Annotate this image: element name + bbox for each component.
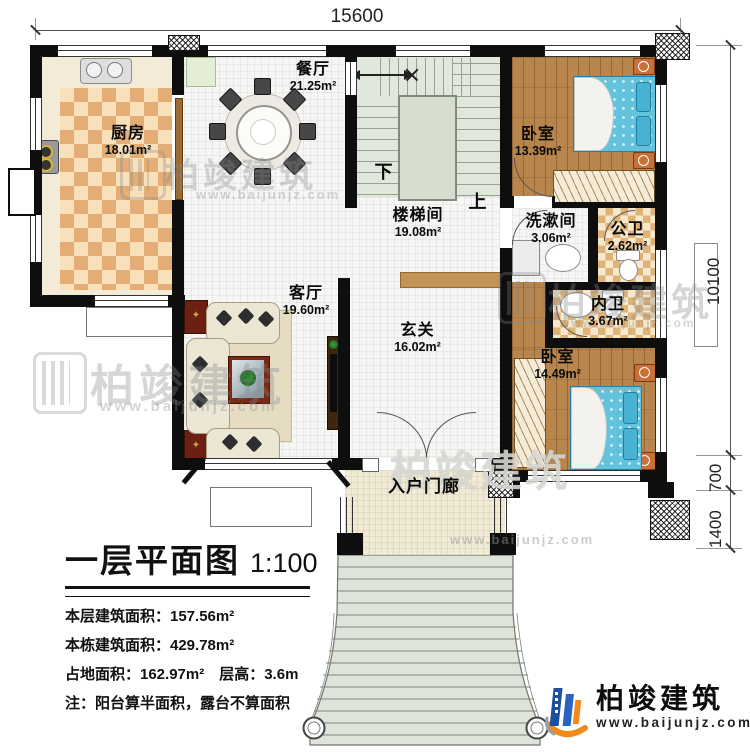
extension-line xyxy=(696,45,742,46)
dimension-right-upper: 700 xyxy=(706,452,726,492)
room-name: 公卫 xyxy=(600,221,655,239)
company-name: 柏竣建筑 xyxy=(596,684,750,715)
porch-rail xyxy=(340,497,356,533)
entry-stairs xyxy=(300,555,550,752)
door-gap xyxy=(500,208,512,248)
room-area: 3.06m² xyxy=(518,231,584,245)
wall xyxy=(545,338,655,348)
watermark-logo xyxy=(33,352,87,414)
side-table: ✦ xyxy=(184,300,208,334)
dimension-line-top xyxy=(35,30,680,31)
extension-line xyxy=(696,548,742,549)
room-name: 入户门廊 xyxy=(385,477,463,496)
title-block: 一层平面图 1:100 本层建筑面积：157.56m² 本栋建筑面积：429.7… xyxy=(65,534,335,713)
room-name: 厨房 xyxy=(93,125,163,143)
room-area: 19.08m² xyxy=(378,225,458,239)
room-label-living: 客厅 19.60m² xyxy=(275,285,337,317)
bay-window-sill xyxy=(210,487,312,527)
window xyxy=(545,45,640,57)
room-label-dining: 餐厅 21.25m² xyxy=(280,61,346,93)
plant xyxy=(329,340,338,349)
stair-landing xyxy=(398,95,457,201)
room-label-porch: 入户门廊 xyxy=(385,477,463,496)
room-area: 13.39m² xyxy=(505,144,571,158)
nightstand xyxy=(633,152,655,169)
room-name: 洗漱间 xyxy=(518,213,584,231)
pillow xyxy=(623,428,638,460)
room-label-bedroom-top: 卧室 13.39m² xyxy=(505,126,571,158)
room-area: 21.25m² xyxy=(280,79,346,93)
scale-label: 1:100 xyxy=(250,548,318,579)
door-frame xyxy=(362,458,379,472)
room-label-kitchen: 厨房 18.01m² xyxy=(93,125,163,157)
room-label-bedroom-bottom: 卧室 14.49m² xyxy=(525,349,590,381)
dining-table-center xyxy=(250,119,276,145)
dimension-line-right xyxy=(730,45,731,548)
stair-direction-line xyxy=(358,74,406,76)
stair-steps-right xyxy=(453,58,500,196)
company-logo: 柏竣建筑 www.baijunjz.com xyxy=(544,684,750,740)
wall-stub xyxy=(648,482,674,498)
window xyxy=(396,45,470,57)
dining-chair xyxy=(209,123,226,140)
room-name: 卧室 xyxy=(505,126,571,144)
window xyxy=(95,295,168,307)
nightstand xyxy=(634,364,656,382)
room-name: 楼梯间 xyxy=(378,207,458,225)
room-label-stair-hall: 楼梯间 19.08m² xyxy=(378,207,458,239)
wall xyxy=(338,278,350,470)
watermark-url: www.baijunjz.com xyxy=(450,532,594,547)
room-area: 3.67m² xyxy=(578,314,638,328)
info-floor-area: 本层建筑面积：157.56m² xyxy=(65,605,335,626)
nightstand xyxy=(633,58,655,75)
company-logo-icon xyxy=(544,684,588,740)
stair-down-label: 下 xyxy=(372,162,396,182)
window-sill xyxy=(86,307,176,337)
title-underline xyxy=(65,586,310,597)
window xyxy=(655,85,667,162)
door-gap xyxy=(514,196,552,208)
kitchen-sink-basin xyxy=(107,62,123,78)
room-area: 2.62m² xyxy=(600,239,655,253)
room-label-inner-bath: 内卫 3.67m² xyxy=(578,296,638,328)
dining-chair xyxy=(254,78,271,95)
company-website: www.baijunjz.com xyxy=(596,715,750,730)
room-name: 餐厅 xyxy=(280,61,346,79)
room-area: 16.02m² xyxy=(385,340,450,354)
room-area: 18.01m² xyxy=(93,143,163,157)
room-name: 卧室 xyxy=(525,349,590,367)
window xyxy=(345,62,357,95)
washroom-sink xyxy=(545,244,581,272)
hatched-block xyxy=(650,500,690,540)
watermark-url: www.baijunjz.com xyxy=(196,187,340,202)
window xyxy=(58,45,152,57)
dimension-right-lower: 1400 xyxy=(706,494,726,548)
porch-column xyxy=(337,533,363,555)
dining-chair xyxy=(299,123,316,140)
room-label-public-bath: 公卫 2.62m² xyxy=(600,221,655,253)
window xyxy=(30,215,42,262)
stair-up-label: 上 xyxy=(466,192,490,212)
wall xyxy=(553,202,667,208)
stair-mark: 上 xyxy=(466,192,490,212)
room-label-washroom: 洗漱间 3.06m² xyxy=(518,213,584,245)
room-area: 19.60m² xyxy=(275,303,337,317)
window xyxy=(208,45,326,57)
info-footprint-height: 占地面积：162.97m² 层高：3.6m xyxy=(65,663,335,684)
tv xyxy=(330,354,337,412)
room-name: 客厅 xyxy=(275,285,337,303)
kitchen-sink-basin xyxy=(86,62,102,78)
bay-window xyxy=(205,458,332,470)
pillow xyxy=(623,392,638,424)
room-label-foyer: 玄关 16.02m² xyxy=(385,322,450,354)
pillow xyxy=(636,116,651,146)
room-name: 玄关 xyxy=(385,322,450,340)
hatched-block xyxy=(655,33,690,60)
room-area: 14.49m² xyxy=(525,367,590,381)
flue-box xyxy=(8,168,36,216)
dimension-right-total: 10100 xyxy=(704,210,724,305)
page-title: 一层平面图 xyxy=(65,534,240,582)
hatched-block xyxy=(168,35,200,51)
watermark-logo xyxy=(498,272,546,324)
info-note: 注：阳台算半面积，露台不算面积 xyxy=(65,692,335,713)
porch-rail xyxy=(494,497,510,533)
watermark-logo xyxy=(120,150,166,200)
window xyxy=(655,378,667,452)
info-building-area: 本栋建筑面积：429.78m² xyxy=(65,634,335,655)
floor-plan: ✦ ✦ xyxy=(0,0,750,752)
watermark-url: www.baijunjz.com xyxy=(100,398,277,415)
shoe-cabinet xyxy=(400,272,502,288)
fridge xyxy=(186,57,216,87)
dimension-top: 15600 xyxy=(302,6,412,28)
washroom-counter xyxy=(512,240,540,276)
stair-mark: 下 xyxy=(372,162,396,182)
wall xyxy=(588,208,598,282)
pillow xyxy=(636,82,651,112)
window xyxy=(30,98,42,150)
room-name: 内卫 xyxy=(578,296,638,314)
